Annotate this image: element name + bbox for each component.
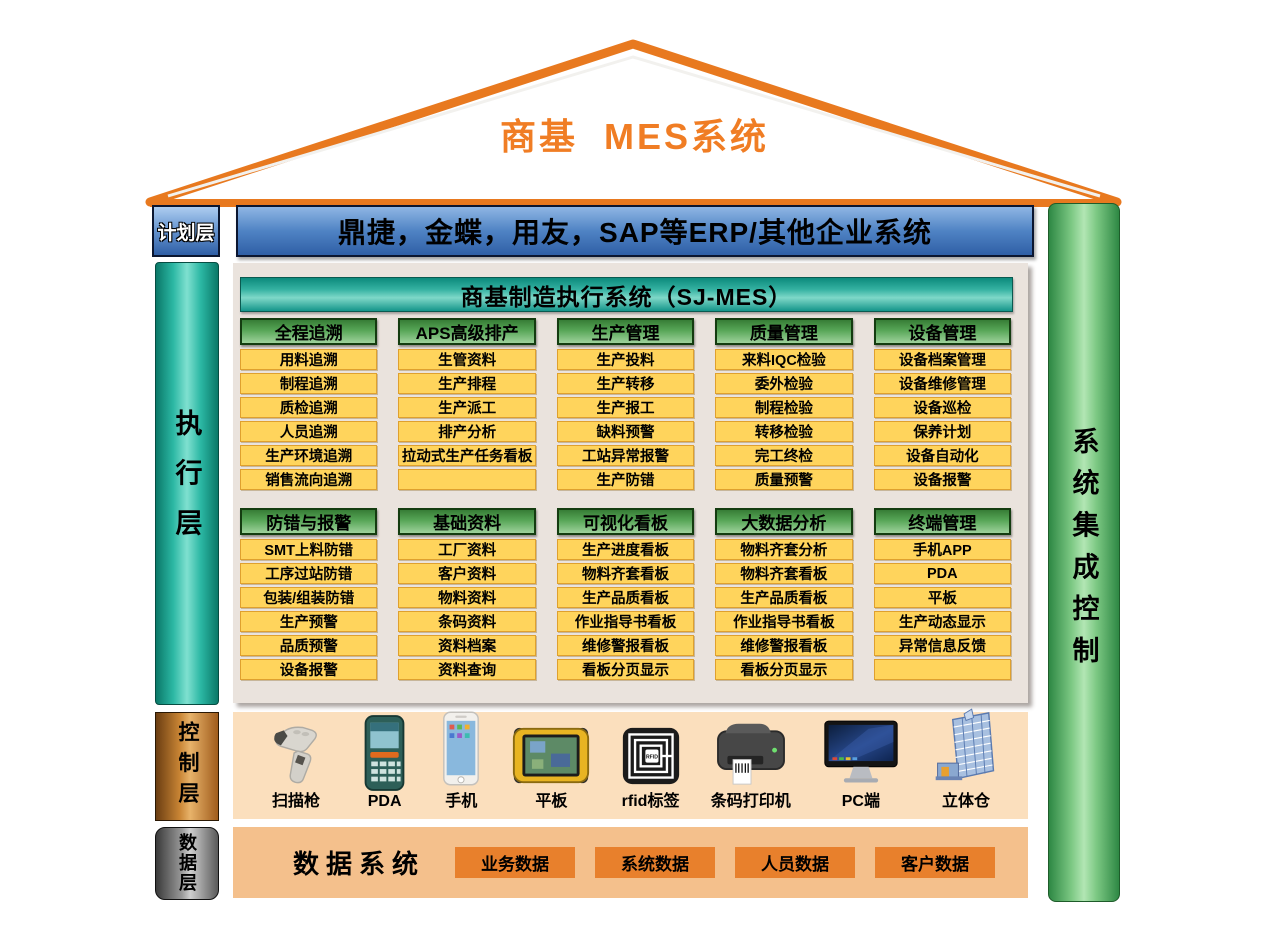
module-cell: 转移检验	[715, 421, 852, 442]
module-cell: 资料档案	[398, 635, 535, 656]
module-list: 手机APPPDA平板生产动态显示异常信息反馈	[874, 539, 1011, 680]
module-cell: 平板	[874, 587, 1011, 608]
module-cell: 生产投料	[557, 349, 694, 370]
module-column: 生产管理生产投料生产转移生产报工缺料预警工站异常报警生产防错	[557, 318, 694, 490]
module-cell: 设备报警	[874, 469, 1011, 490]
system-integration-label: 系统集成控制	[1065, 427, 1104, 678]
module-cell: 排产分析	[398, 421, 535, 442]
module-cell: 生管资料	[398, 349, 535, 370]
module-list: 生产投料生产转移生产报工缺料预警工站异常报警生产防错	[557, 349, 694, 490]
device-label: PC端	[842, 787, 880, 811]
module-header: 可视化看板	[557, 508, 694, 535]
module-cell: 设备维修管理	[874, 373, 1011, 394]
module-column: 设备管理设备档案管理设备维修管理设备巡检保养计划设备自动化设备报警	[874, 318, 1011, 490]
svg-text:RFID: RFID	[646, 754, 658, 760]
device-label: 条码打印机	[711, 787, 791, 811]
module-cell: 工厂资料	[398, 539, 535, 560]
device-item: 立体仓	[930, 708, 1002, 811]
pda-icon	[358, 714, 411, 792]
module-cell: 手机APP	[874, 539, 1011, 560]
module-list: SMT上料防错工序过站防错包装/组装防错生产预警品质预警设备报警	[240, 539, 377, 680]
module-header: APS高级排产	[398, 318, 535, 345]
desktop-pc-icon	[821, 719, 901, 786]
module-cell: 异常信息反馈	[874, 635, 1011, 656]
device-label: 平板	[535, 787, 567, 811]
module-cell: 维修警报看板	[715, 635, 852, 656]
device-item: PDA	[358, 714, 411, 811]
module-list: 工厂资料客户资料物料资料条码资料资料档案资料查询	[398, 539, 535, 680]
module-cell: 生产动态显示	[874, 611, 1011, 632]
module-cell: 质量预警	[715, 469, 852, 490]
rfid-tag-icon: RFID	[621, 726, 681, 786]
module-cell: 物料齐套看板	[715, 563, 852, 584]
module-cell: 作业指导书看板	[557, 611, 694, 632]
control-layer-label-box: 控制层	[155, 712, 219, 821]
module-cell: 条码资料	[398, 611, 535, 632]
module-cell: 委外检验	[715, 373, 852, 394]
data-system-title: 数据系统	[293, 844, 455, 881]
module-cell: 物料齐套看板	[557, 563, 694, 584]
mes-architecture-diagram: 商基 MES系统 计划层 鼎捷，金蝶，用友，SAP等ERP/其他企业系统 执行层…	[0, 0, 1269, 949]
module-cell: 生产预警	[240, 611, 377, 632]
smartphone-icon	[440, 711, 482, 786]
module-row-0: 全程追溯用料追溯制程追溯质检追溯人员追溯生产环境追溯销售流向追溯APS高级排产生…	[240, 318, 1011, 490]
module-header: 大数据分析	[715, 508, 852, 535]
device-label: PDA	[368, 793, 402, 811]
module-cell: 生产品质看板	[715, 587, 852, 608]
module-cell: 用料追溯	[240, 349, 377, 370]
module-cell: SMT上料防错	[240, 539, 377, 560]
module-cell: PDA	[874, 563, 1011, 584]
module-column: 防错与报警SMT上料防错工序过站防错包装/组装防错生产预警品质预警设备报警	[240, 508, 377, 680]
module-column: 大数据分析物料齐套分析物料齐套看板生产品质看板作业指导书看板维修警报看板看板分页…	[715, 508, 852, 680]
module-column: 质量管理来料IQC检验委外检验制程检验转移检验完工终检质量预警	[715, 318, 852, 490]
device-band: 扫描枪 PDA 手机 平板 RFID rfid标签 条码打印机	[233, 712, 1028, 819]
module-cell: 设备报警	[240, 659, 377, 680]
module-cell: 制程追溯	[240, 373, 377, 394]
module-list: 来料IQC检验委外检验制程检验转移检验完工终检质量预警	[715, 349, 852, 490]
module-cell: 看板分页显示	[557, 659, 694, 680]
data-buttons: 业务数据系统数据人员数据客户数据	[455, 847, 995, 878]
module-cell: 品质预警	[240, 635, 377, 656]
data-layer-label-box: 数据层	[155, 827, 219, 900]
device-item: 平板	[511, 725, 591, 811]
device-item: 手机	[440, 711, 482, 811]
module-cell: 缺料预警	[557, 421, 694, 442]
module-row-1: 防错与报警SMT上料防错工序过站防错包装/组装防错生产预警品质预警设备报警基础资…	[240, 508, 1011, 680]
data-layer-label: 数据层	[174, 833, 200, 893]
module-cell: 制程检验	[715, 397, 852, 418]
control-layer-label: 控制层	[172, 721, 202, 812]
device-label: 立体仓	[942, 787, 990, 811]
module-header: 全程追溯	[240, 318, 377, 345]
device-item: PC端	[821, 719, 901, 811]
roof-outline	[0, 0, 1269, 212]
diagram-title: 商基 MES系统	[0, 108, 1269, 160]
data-button: 系统数据	[595, 847, 715, 878]
module-cell: 人员追溯	[240, 421, 377, 442]
system-integration-bar: 系统集成控制	[1048, 203, 1120, 902]
barcode-scanner-icon	[263, 718, 329, 786]
module-cell: 物料资料	[398, 587, 535, 608]
module-cell	[874, 659, 1011, 680]
module-cell: 质检追溯	[240, 397, 377, 418]
module-cell: 设备自动化	[874, 445, 1011, 466]
module-list: 生产进度看板物料齐套看板生产品质看板作业指导书看板维修警报看板看板分页显示	[557, 539, 694, 680]
device-item: 条码打印机	[710, 720, 792, 811]
plan-layer-label: 计划层	[152, 205, 220, 257]
module-cell: 工序过站防错	[240, 563, 377, 584]
module-cell: 工站异常报警	[557, 445, 694, 466]
module-header: 终端管理	[874, 508, 1011, 535]
module-column: 可视化看板生产进度看板物料齐套看板生产品质看板作业指导书看板维修警报看板看板分页…	[557, 508, 694, 680]
label-printer-icon	[710, 720, 792, 786]
module-cell: 生产报工	[557, 397, 694, 418]
module-header: 防错与报警	[240, 508, 377, 535]
module-cell: 保养计划	[874, 421, 1011, 442]
module-header: 质量管理	[715, 318, 852, 345]
module-header: 生产管理	[557, 318, 694, 345]
module-cell: 来料IQC检验	[715, 349, 852, 370]
module-cell: 生产环境追溯	[240, 445, 377, 466]
module-column: 基础资料工厂资料客户资料物料资料条码资料资料档案资料查询	[398, 508, 535, 680]
module-cell: 包装/组装防错	[240, 587, 377, 608]
module-list: 用料追溯制程追溯质检追溯人员追溯生产环境追溯销售流向追溯	[240, 349, 377, 490]
device-item: 扫描枪	[263, 718, 329, 811]
module-cell: 生产派工	[398, 397, 535, 418]
module-column: 终端管理手机APPPDA平板生产动态显示异常信息反馈	[874, 508, 1011, 680]
module-cell: 完工终检	[715, 445, 852, 466]
data-button: 客户数据	[875, 847, 995, 878]
module-cell: 物料齐套分析	[715, 539, 852, 560]
module-cell: 生产排程	[398, 373, 535, 394]
data-button: 业务数据	[455, 847, 575, 878]
module-cell	[398, 469, 535, 490]
execution-layer-bar: 执行层	[155, 262, 219, 705]
module-cell: 销售流向追溯	[240, 469, 377, 490]
execution-layer-label: 执行层	[168, 409, 207, 559]
module-cell: 看板分页显示	[715, 659, 852, 680]
warehouse-icon	[930, 708, 1002, 786]
module-column: APS高级排产生管资料生产排程生产派工排产分析拉动式生产任务看板	[398, 318, 535, 490]
module-cell: 拉动式生产任务看板	[398, 445, 535, 466]
module-column: 全程追溯用料追溯制程追溯质检追溯人员追溯生产环境追溯销售流向追溯	[240, 318, 377, 490]
mes-panel-title: 商基制造执行系统（SJ-MES）	[240, 277, 1013, 312]
module-cell: 生产品质看板	[557, 587, 694, 608]
module-cell: 作业指导书看板	[715, 611, 852, 632]
module-cell: 客户资料	[398, 563, 535, 584]
module-cell: 资料查询	[398, 659, 535, 680]
data-band: 数据系统 业务数据系统数据人员数据客户数据	[233, 827, 1028, 898]
module-list: 设备档案管理设备维修管理设备巡检保养计划设备自动化设备报警	[874, 349, 1011, 490]
device-label: rfid标签	[622, 787, 680, 811]
module-header: 基础资料	[398, 508, 535, 535]
module-cell: 维修警报看板	[557, 635, 694, 656]
device-item: RFID rfid标签	[621, 726, 681, 811]
module-cell: 设备档案管理	[874, 349, 1011, 370]
data-button: 人员数据	[735, 847, 855, 878]
module-cell: 设备巡检	[874, 397, 1011, 418]
rugged-tablet-icon	[511, 725, 591, 786]
module-list: 生管资料生产排程生产派工排产分析拉动式生产任务看板	[398, 349, 535, 490]
module-header: 设备管理	[874, 318, 1011, 345]
module-cell: 生产转移	[557, 373, 694, 394]
device-label: 手机	[445, 787, 477, 811]
erp-systems-bar: 鼎捷，金蝶，用友，SAP等ERP/其他企业系统	[236, 205, 1034, 257]
device-label: 扫描枪	[272, 787, 320, 811]
module-cell: 生产进度看板	[557, 539, 694, 560]
module-cell: 生产防错	[557, 469, 694, 490]
module-list: 物料齐套分析物料齐套看板生产品质看板作业指导书看板维修警报看板看板分页显示	[715, 539, 852, 680]
